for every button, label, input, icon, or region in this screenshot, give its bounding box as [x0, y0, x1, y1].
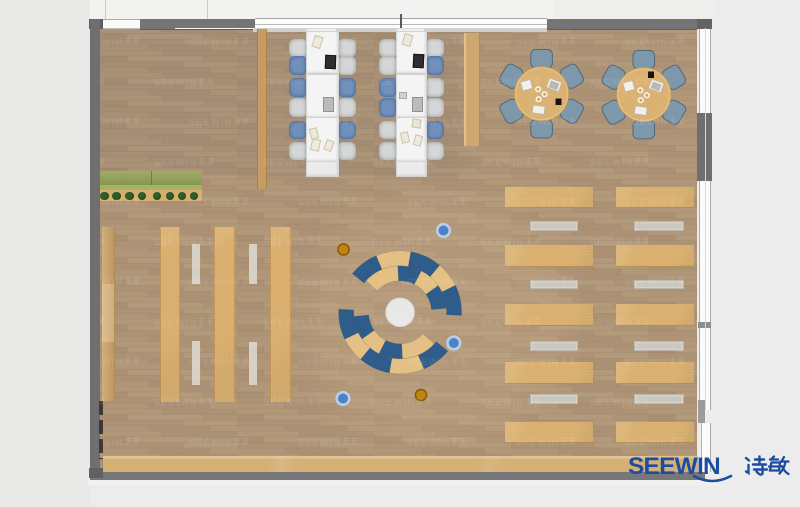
svg-text:SEEWIN: SEEWIN [628, 453, 720, 480]
